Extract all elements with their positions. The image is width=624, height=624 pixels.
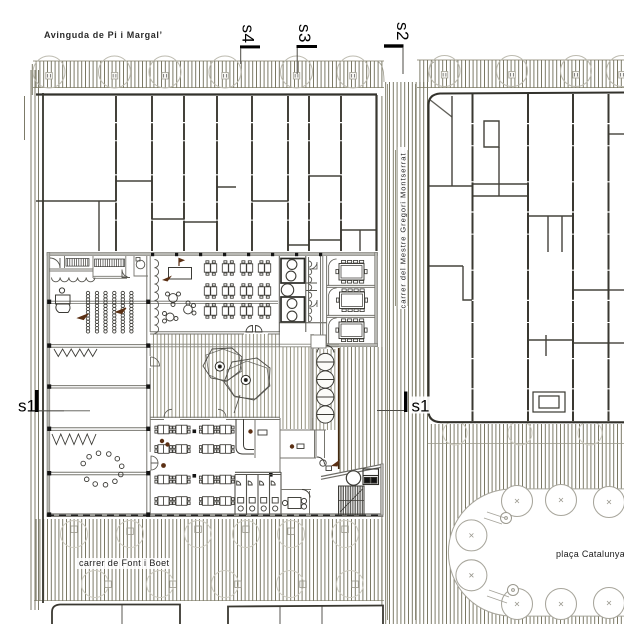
svg-text:carrer del Mestre Gregori Mont: carrer del Mestre Gregori Montserrat xyxy=(399,153,408,309)
svg-text:s3: s3 xyxy=(295,24,314,43)
svg-text:s4: s4 xyxy=(239,25,258,44)
svg-text:plaça Catalunya: plaça Catalunya xyxy=(556,549,624,559)
svg-text:s1: s1 xyxy=(412,397,430,416)
svg-text:s1: s1 xyxy=(18,397,36,416)
svg-text:carrer de Font i Boet: carrer de Font i Boet xyxy=(79,558,170,568)
svg-text:s2: s2 xyxy=(393,22,412,41)
svg-text:Avinguda de Pi i Margal’: Avinguda de Pi i Margal’ xyxy=(44,30,163,40)
